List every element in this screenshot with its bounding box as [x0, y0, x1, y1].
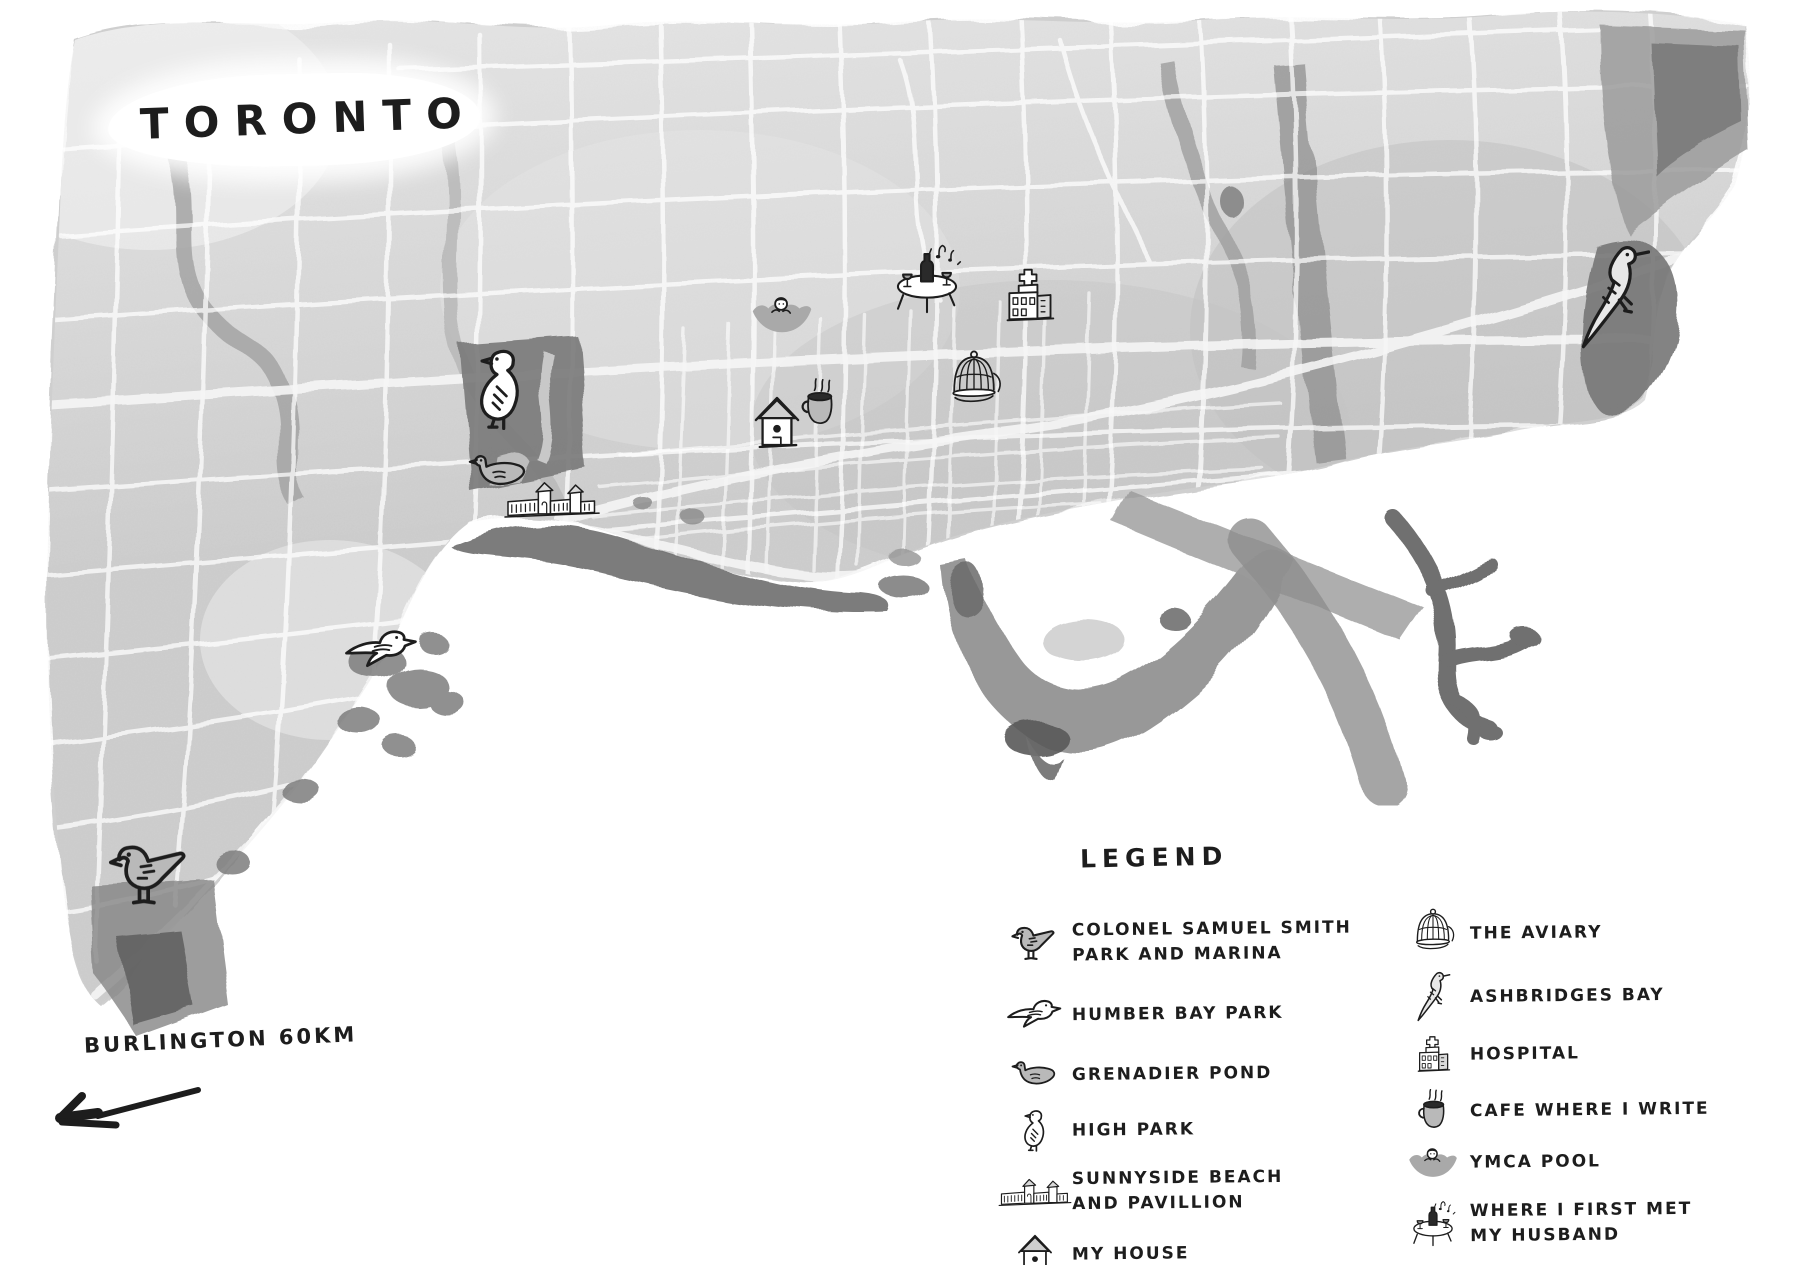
toronto-islands — [890, 550, 1292, 780]
house-icon — [998, 1231, 1072, 1265]
legend-item-my-house: MY HOUSE — [998, 1226, 1398, 1265]
legend-item-label: ASHBRIDGES BAY — [1470, 983, 1665, 1010]
legend-title: LEGEND — [1080, 841, 1229, 873]
legend-item-label: MY HOUSE — [1072, 1241, 1190, 1265]
coffee-cup-icon — [1396, 1089, 1470, 1131]
legend-item-cafe: CAFE WHERE I WRITE — [1396, 1086, 1796, 1134]
legend-item-label: HOSPITAL — [1470, 1041, 1580, 1067]
legend-item-ymca-pool: YMCA POOL — [1396, 1140, 1796, 1184]
pavilion-icon — [998, 1174, 1072, 1208]
legend-item-label: SUNNYSIDE BEACH AND PAVILLION — [1072, 1165, 1284, 1216]
legend-item-high-park: HIGH PARK — [998, 1106, 1398, 1154]
long-tailed-bird-icon — [1396, 969, 1470, 1023]
legend-item-the-aviary: THE AVIARY — [1396, 906, 1796, 960]
port-lands-and-spit — [1112, 490, 1538, 782]
legend-item-label: COLONEL SAMUEL SMITH PARK AND MARINA — [1072, 916, 1353, 968]
swimmer-icon — [1396, 1144, 1470, 1180]
hospital-icon — [1396, 1033, 1470, 1075]
legend-item-label: CAFE WHERE I WRITE — [1470, 1096, 1710, 1123]
duck-icon — [998, 1059, 1072, 1089]
legend-item-grenadier-pond: GRENADIER POND — [998, 1052, 1398, 1096]
birdcage-icon — [1396, 908, 1470, 958]
legend-item-label: HUMBER BAY PARK — [1072, 1001, 1284, 1028]
legend-item-sunnyside-beach: SUNNYSIDE BEACH AND PAVILLION — [998, 1160, 1398, 1222]
legend-item-ashbridges-bay: ASHBRIDGES BAY — [1396, 968, 1796, 1024]
southwest-shore — [90, 878, 228, 1038]
legend-column-2: THE AVIARY ASHBRIDGES BAY HOSPITAL CAFE … — [1396, 906, 1796, 1256]
legend-item-label: GRENADIER POND — [1072, 1061, 1273, 1088]
legend-item-colonel-samuel-smith: COLONEL SAMUEL SMITH PARK AND MARINA — [998, 910, 1398, 974]
legend-item-label: HIGH PARK — [1072, 1117, 1195, 1143]
legend-item-hospital: HOSPITAL — [1396, 1030, 1796, 1078]
small-bird-icon — [998, 1108, 1072, 1152]
burlington-arrow-icon — [46, 1072, 206, 1136]
legend-item-label: THE AVIARY — [1470, 920, 1603, 946]
legend-item-humber-bay-park: HUMBER BAY PARK — [998, 988, 1398, 1040]
gull-standing-icon — [998, 917, 1072, 967]
flying-bird-icon — [998, 996, 1072, 1032]
legend-item-where-i-met-my-husband: WHERE I FIRST MET MY HUSBAND — [1396, 1190, 1796, 1256]
table-icon — [1396, 1199, 1470, 1247]
legend-column-1: COLONEL SAMUEL SMITH PARK AND MARINA HUM… — [998, 910, 1398, 1265]
legend-item-label: YMCA POOL — [1470, 1149, 1601, 1175]
toronto-illustrated-map: TORONTO BURLINGTON 60KM LEGEND COLONEL S… — [0, 0, 1800, 1265]
legend-item-label: WHERE I FIRST MET MY HUSBAND — [1470, 1197, 1693, 1249]
